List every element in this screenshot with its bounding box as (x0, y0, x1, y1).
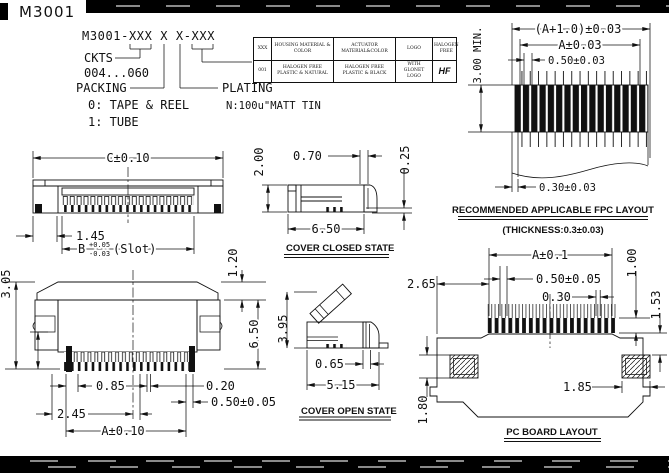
plating-label: PLATING (222, 81, 273, 95)
spec-value-logo: WITH GLONET LOGO (395, 61, 432, 83)
dim-cc-lip: 0.25 (398, 146, 412, 175)
dim-slot-tol-minus: -0.03 (89, 250, 110, 258)
dim-pcb-anchor-height: 1.80 (416, 396, 430, 425)
dim-fv-height: 3.05 (0, 270, 13, 299)
dim-fv-top: 1.20 (226, 249, 240, 278)
dim-cc-front: 0.70 (293, 149, 322, 163)
dim-pcb-span: A±0.1 (532, 248, 568, 262)
part-number-code: M3001-XXX X X-XXX (82, 29, 215, 43)
fpc-layout-subcaption: (THICKNESS:0.3±0.03) (502, 225, 603, 236)
dim-pcb-edge: 2.65 (407, 277, 436, 291)
ckts-range: 004...060 (84, 66, 149, 80)
dim-co-pivot: 0.65 (315, 357, 344, 371)
packing-option-tube: 1: TUBE (88, 115, 139, 129)
spec-value-actuator: HALOGEN FREE PLASTIC & BLACK (333, 61, 395, 83)
dim-cc-depth: 6.50 (312, 222, 341, 236)
dim-pcb-pad-length: 1.00 (625, 249, 639, 278)
dim-co-height: 3.95 (276, 315, 290, 344)
dim-top-width: C±0.10 (106, 151, 149, 165)
dim-pcb-anchor-width: 1.85 (563, 380, 592, 394)
spec-value-halogen-logo: HF (432, 61, 456, 83)
fpc-layout-caption: RECOMMENDED APPLICABLE FPC LAYOUT (452, 205, 654, 216)
dim-fpc-height: 3.00 MIN. (472, 27, 484, 84)
dim-pcb-pad-width: 0.30 (542, 290, 571, 304)
packing-label: PACKING (76, 81, 127, 95)
spec-value-key: 001 (254, 61, 271, 83)
dim-slot-base: B (78, 242, 85, 256)
cover-closed-caption: COVER CLOSED STATE (286, 243, 394, 254)
dim-fv-tab-offset: 2.45 (57, 407, 86, 421)
dim-slot-suffix: (Slot) (113, 242, 156, 256)
dim-slot-tol-plus: +0.05 (89, 241, 110, 249)
dim-fpc-pitch: 0.50±0.03 (548, 55, 605, 67)
cover-closed-view: 2.00 0.70 0.25 6.50 COVER CLOSED STATE (252, 146, 412, 258)
spec-header-housing: HOUSING MATERIAL & COLOR (271, 38, 333, 60)
spec-header-actuator: ACTUATOR MATERIAL&COLOR (333, 38, 395, 60)
spec-table-header-row: XXX HOUSING MATERIAL & COLOR ACTUATOR MA… (254, 38, 456, 60)
dim-fv-span: A±0.10 (101, 424, 144, 438)
dim-cc-height: 2.00 (252, 148, 266, 177)
dim-co-depth: 5.15 (327, 378, 356, 392)
dim-pcb-pitch: 0.50±0.05 (536, 272, 601, 286)
plating-value: N:100u"MATT TIN (226, 100, 321, 112)
spec-table: XXX HOUSING MATERIAL & COLOR ACTUATOR MA… (253, 37, 457, 83)
drawing-sheet: M3001 M3001-XXX X X-XXX CKTS 004...060 P… (0, 0, 669, 473)
cover-open-caption: COVER OPEN STATE (301, 406, 397, 417)
dim-fv-contact-width: 0.20 (206, 379, 235, 393)
dim-fv-pitch: 0.50±0.05 (211, 395, 276, 409)
dim-fpc-finger: 0.30±0.03 (539, 182, 596, 194)
dim-fv-depth: 6.50 (247, 320, 261, 349)
spec-header-halogen: HALOGEN FREE (432, 38, 460, 60)
dim-fpc-total: (A+1.0)±0.03 (535, 22, 622, 36)
dim-fv-first-pitch: 0.85 (96, 379, 125, 393)
spec-header-key: XXX (254, 38, 271, 60)
pcb-layout-view: A±0.1 0.50±0.05 0.30 1.00 1.53 2.65 1.85 (407, 248, 667, 442)
ckts-label: CKTS (84, 51, 113, 65)
spec-table-data-row: 001 HALOGEN FREE PLASTIC & NATURAL HALOG… (254, 60, 456, 83)
packing-option-tape: 0: TAPE & REEL (88, 98, 189, 112)
cover-open-view: 3.95 0.65 5.15 COVER OPEN STATE (276, 284, 397, 420)
dim-pcb-pad-offset: 1.53 (649, 291, 663, 320)
pcb-layout-caption: PC BOARD LAYOUT (506, 427, 598, 438)
connector-top-view: C±0.10 1.45 B +0.05 -0.03 (Slot) (16, 151, 223, 258)
connector-front-view: 3.05 1.20 6.50 0.85 0.20 0.50±0.05 2.45 (0, 249, 276, 438)
spec-header-logo: LOGO (395, 38, 432, 60)
spec-value-housing: HALOGEN FREE PLASTIC & NATURAL (271, 61, 333, 83)
fpc-layout-view: (A+1.0)±0.03 A±0.03 0.50±0.03 3.00 MIN. … (452, 22, 654, 236)
dim-fpc-span: A±0.03 (558, 38, 601, 52)
